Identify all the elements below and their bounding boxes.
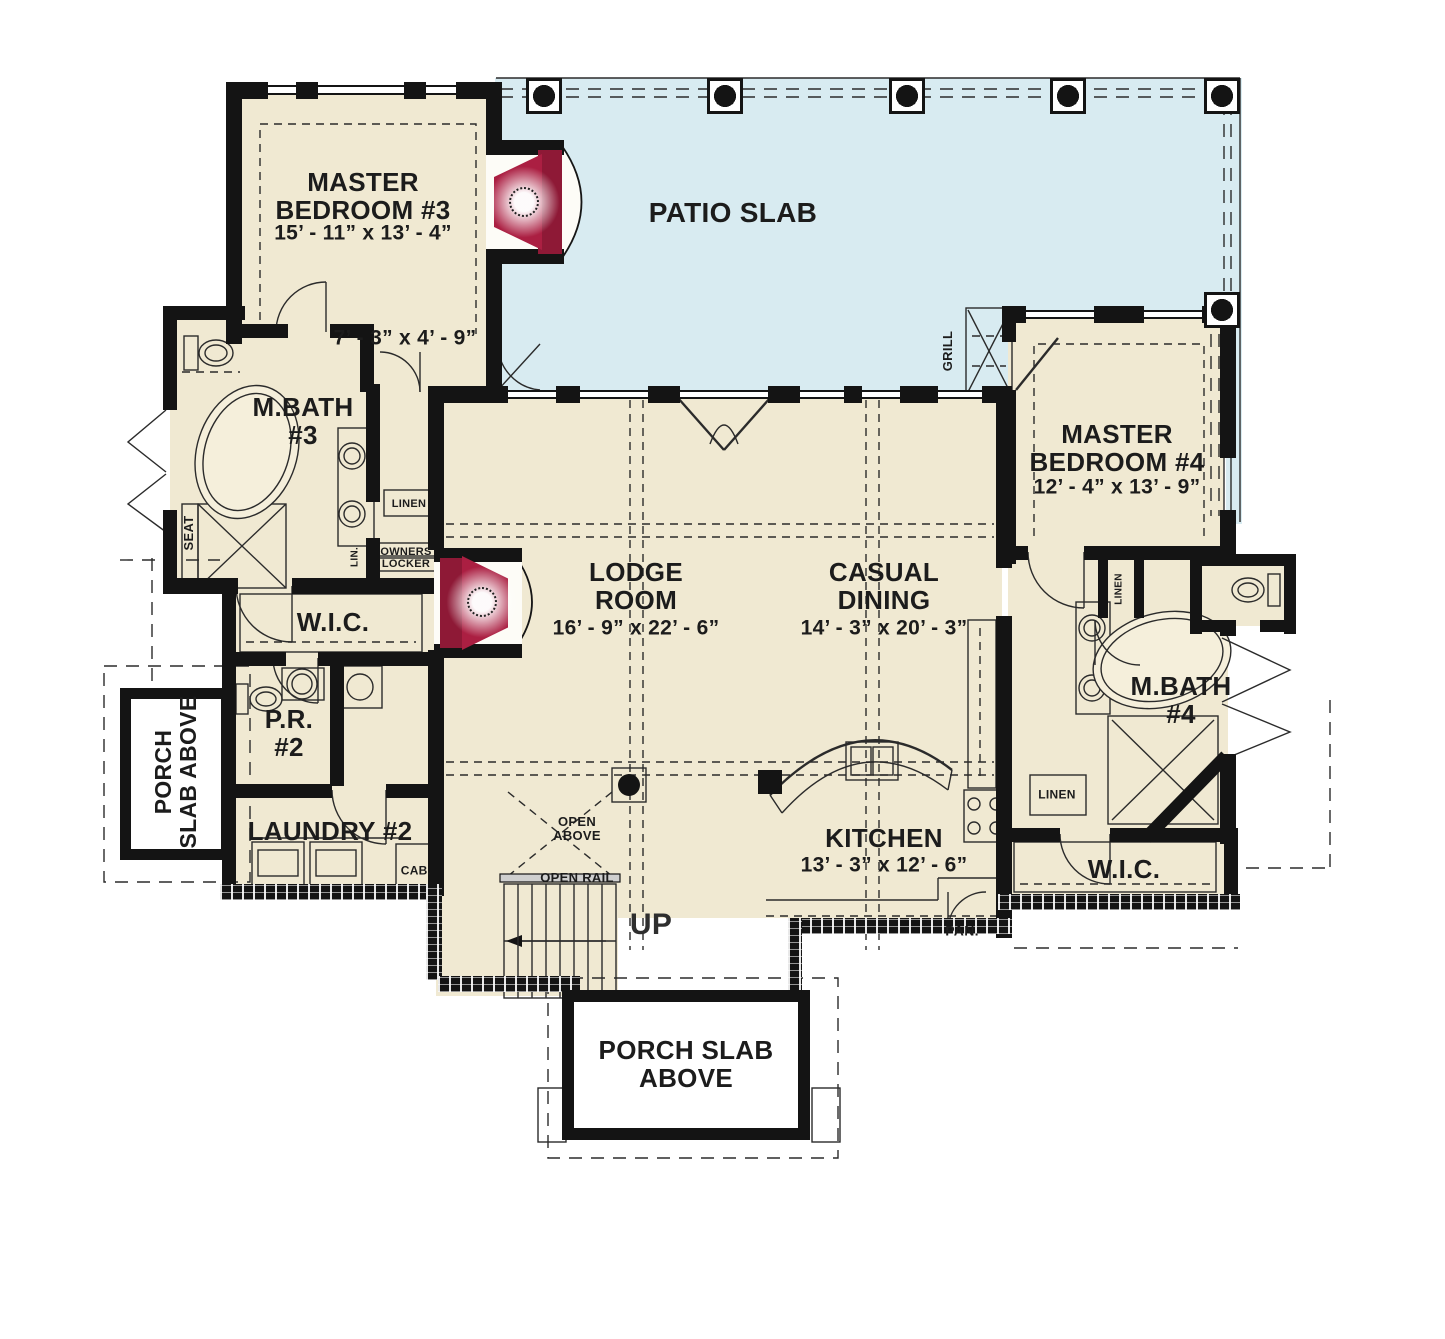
patio-column (1050, 78, 1086, 114)
floorplan-line (316, 850, 356, 876)
floorplan-line (1222, 638, 1290, 702)
wall-segment (1098, 556, 1108, 618)
floorplan-line (851, 747, 871, 775)
patio-label: PATIO SLAB (649, 198, 817, 228)
floorplan-line (968, 822, 980, 834)
pan-label: PAN. (945, 923, 979, 938)
floorplan-line (184, 336, 198, 370)
floorplan-line (812, 1088, 840, 1142)
linen-bath3-label: LINEN (392, 499, 427, 511)
floorplan-line (380, 352, 420, 392)
wall-segment (1094, 306, 1144, 323)
floorplan-line (236, 684, 248, 714)
wall-segment (330, 652, 344, 786)
wall-segment (556, 386, 580, 403)
wall-segment (1002, 306, 1016, 342)
floorplan-line (344, 448, 360, 464)
m-bath-3-label: M.BATH #3 (253, 393, 354, 449)
floorplan-line (252, 842, 304, 888)
wall-segment (296, 82, 318, 99)
master-bedroom-4-label: MASTER BEDROOM #4 (1030, 420, 1205, 476)
wall-segment (1110, 828, 1238, 842)
wall-segment (404, 82, 426, 99)
floorplan-line (782, 762, 948, 813)
wic-right-label: W.I.C. (1088, 855, 1161, 883)
window (240, 85, 488, 95)
floorplan-line (128, 410, 166, 472)
floorplan-line (506, 935, 522, 947)
floorplan-line (968, 620, 996, 788)
wall-segment (220, 884, 442, 900)
floorplan-line (1028, 552, 1084, 608)
wall-segment (438, 976, 580, 992)
floorplan-line (770, 740, 952, 795)
wall-segment (426, 884, 442, 980)
wall-segment (222, 784, 332, 798)
wic-left-label: W.I.C. (297, 608, 370, 636)
master-bedroom-4-dims: 12’ - 4” x 13’ - 9” (1034, 477, 1201, 500)
wall-segment (222, 652, 286, 666)
wall-segment (788, 918, 802, 992)
laundry-2-label: LAUNDRY #2 (248, 817, 413, 845)
seat-label: SEAT (182, 516, 196, 551)
grill-label: GRILL (941, 331, 955, 372)
wall-segment (240, 324, 288, 338)
wall-segment (768, 386, 800, 403)
floorplan-line (770, 795, 782, 813)
wall-segment (226, 82, 242, 344)
fireplace-bedroom3-ring (509, 187, 539, 217)
floor-plan: PATIO SLAB MASTER BEDROOM #3 15’ - 11” x… (0, 0, 1445, 1339)
wall-segment (1134, 556, 1144, 618)
powder-2-label: P.R. #2 (265, 705, 313, 761)
patio-column (1204, 78, 1240, 114)
wall-segment (758, 770, 782, 794)
patio-column (707, 78, 743, 114)
floorplan-line (1268, 574, 1280, 606)
linen-bath4-label: LINEN (1038, 789, 1076, 802)
floorplan-line (678, 398, 724, 450)
floorplan-line (1222, 704, 1290, 760)
vestibule-dims: 7’ - 3” x 4’ - 9” (334, 328, 477, 351)
m-bath-4-label: M.BATH #4 (1131, 672, 1232, 728)
wall-segment (486, 82, 502, 144)
wall-segment (1002, 546, 1028, 560)
floorplan-line (338, 666, 382, 708)
floorplan-line (258, 850, 298, 876)
floorplan-line (562, 146, 582, 258)
open-above-label: OPEN ABOVE (553, 815, 601, 843)
wall-segment (428, 388, 444, 550)
wall-segment (486, 258, 502, 398)
floorplan-line (292, 674, 312, 694)
floorplan-line (128, 474, 166, 532)
master-bedroom-3-dims: 15’ - 11” x 13’ - 4” (274, 223, 452, 246)
kitchen-label: KITCHEN (825, 824, 943, 852)
wall-segment (428, 386, 508, 403)
porch-left-label: PORCH SLAB ABOVE (151, 696, 201, 849)
floorplan-line (724, 398, 770, 450)
linen-hall4-label: LINEN (1115, 573, 1126, 605)
floorplan-line (205, 345, 227, 361)
lin-label: LIN. (351, 547, 362, 567)
kitchen-dims: 13’ - 3” x 12’ - 6” (801, 855, 968, 878)
lodge-room-label: LODGE ROOM (589, 558, 683, 614)
wall-segment (1190, 554, 1296, 566)
floorplan-line (1079, 615, 1105, 641)
up-label: UP (630, 909, 672, 941)
patio-column (526, 78, 562, 114)
floorplan-line (347, 674, 373, 700)
wall-segment (1002, 828, 1060, 842)
patio-column (889, 78, 925, 114)
wall-segment (366, 384, 380, 502)
floorplan-line (344, 506, 360, 522)
casual-dining-dims: 14’ - 3” x 20’ - 3” (801, 618, 968, 641)
wall-segment (163, 306, 177, 410)
wall-segment (1260, 620, 1296, 632)
cab-label: CAB. (401, 865, 432, 878)
casual-dining-label: CASUAL DINING (829, 558, 939, 614)
floorplan-line (310, 842, 362, 888)
wall-segment (292, 578, 438, 594)
wall-segment (998, 894, 1240, 910)
wall-segment (1220, 620, 1236, 636)
wall-segment (648, 386, 680, 403)
wall-segment (1002, 390, 1016, 564)
floorplan-line (1232, 578, 1264, 602)
floorplan-line (710, 425, 738, 444)
floorplan-line (1016, 338, 1058, 390)
floorplan-line (873, 747, 893, 775)
floorplan-line (1146, 756, 1226, 838)
wall-segment (844, 386, 862, 403)
porch-bottom-label: PORCH SLAB ABOVE (599, 1036, 774, 1092)
master-bedroom-3-label: MASTER BEDROOM #3 (276, 168, 451, 224)
fireplace-lodge-ring (467, 587, 497, 617)
floorplan-line (948, 770, 952, 790)
floorplan-line (618, 774, 640, 796)
open-rail-label: OPEN RAIL (540, 871, 613, 885)
wall-segment (428, 650, 444, 896)
owners-locker-label: OWNERS LOCKER (380, 547, 431, 571)
lodge-room-dims: 16’ - 9” x 22’ - 6” (553, 618, 720, 641)
wall-segment (1220, 306, 1236, 458)
patio-column (1204, 292, 1240, 328)
wall-segment (996, 616, 1012, 938)
wall-segment (900, 386, 938, 403)
floorplan-line (339, 501, 365, 527)
floorplan-line (968, 798, 980, 810)
floorplan-line (1238, 583, 1258, 597)
